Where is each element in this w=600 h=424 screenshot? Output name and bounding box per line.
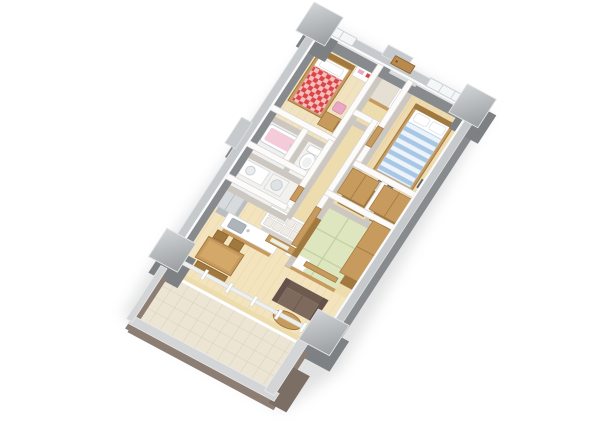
floor-plan-canvas <box>0 0 600 424</box>
floor-plan-svg <box>0 0 600 424</box>
